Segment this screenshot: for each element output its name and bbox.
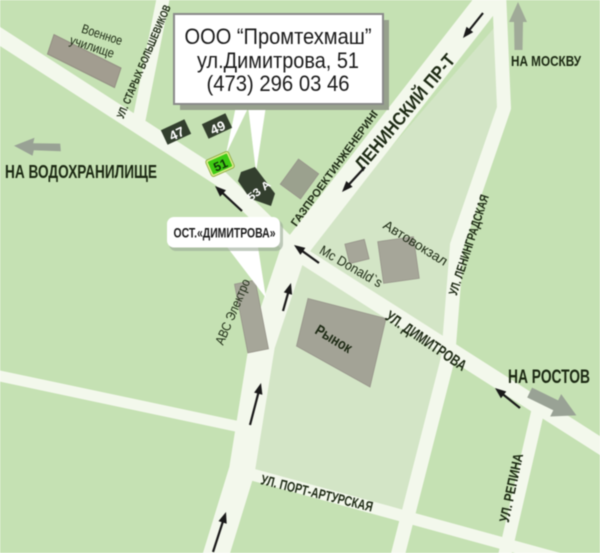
svg-text:НА РОСТОВ: НА РОСТОВ <box>508 367 590 388</box>
svg-text:ОСТ.«ДИМИТРОВА»: ОСТ.«ДИМИТРОВА» <box>174 226 276 241</box>
svg-text:(473) 296 03 46: (473) 296 03 46 <box>207 71 350 96</box>
svg-text:ООО “Промтехмаш”: ООО “Промтехмаш” <box>185 24 372 49</box>
svg-text:ул.Димитрова, 51: ул.Димитрова, 51 <box>197 48 359 73</box>
svg-text:НА ВОДОХРАНИЛИЩЕ: НА ВОДОХРАНИЛИЩЕ <box>5 162 157 182</box>
svg-text:НА МОСКВУ: НА МОСКВУ <box>511 53 582 70</box>
